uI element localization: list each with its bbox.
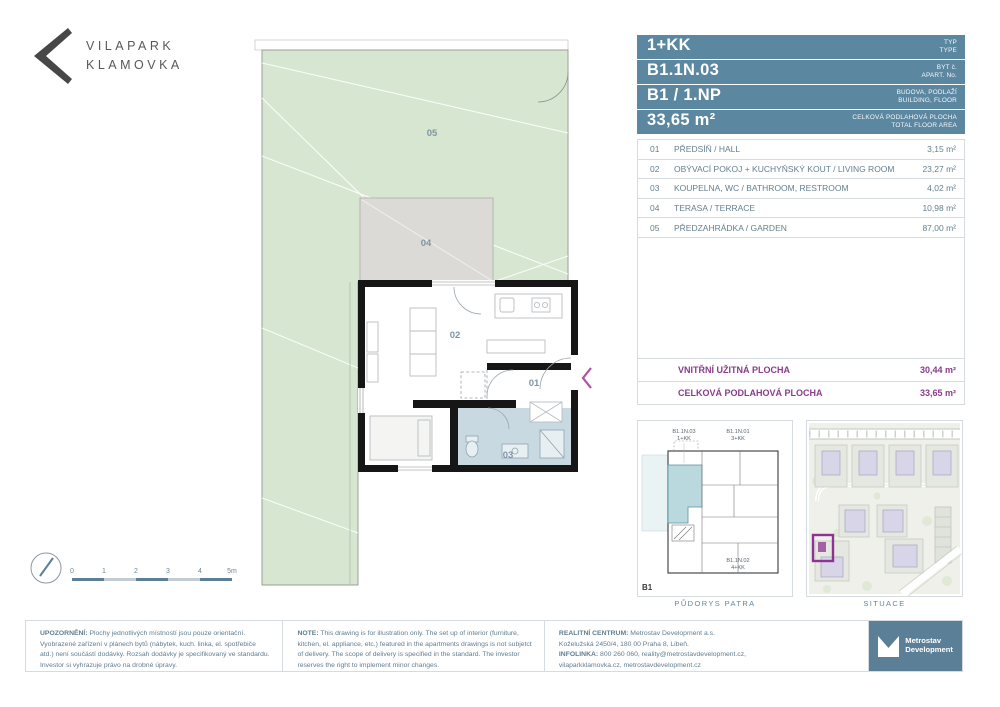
total-area-label-cz: CELKOVÁ PODLAHOVÁ PLOCHA xyxy=(852,114,957,121)
mini-unit1-type: 3+KK xyxy=(731,436,745,442)
header-row-building-floor: B1 / 1.NP BUDOVA, PODLAŽÍ BUILDING, FLOO… xyxy=(637,85,965,109)
site-boundary xyxy=(255,40,568,50)
scale-tick-3: 3 xyxy=(166,568,170,575)
mini-terrace-dashed xyxy=(674,441,698,451)
garden-number-label: 05 xyxy=(427,128,438,139)
metrostav-logo-text: Metrostav Development xyxy=(905,637,953,654)
terrace-number-label: 04 xyxy=(421,238,432,249)
room-name: OBÝVACÍ POKOJ + KUCHYŇSKÝ KOUT / LIVING … xyxy=(674,164,922,174)
total-floor-area: 33,65 m² xyxy=(647,111,715,130)
scale-tick-5: 5m xyxy=(227,568,237,575)
living-number-label: 02 xyxy=(450,330,461,341)
railway-band xyxy=(809,429,960,439)
floor-overview-box: B1.1N.03 1+KK B1.1N.01 3+KK B1.1N.02 4+K… xyxy=(637,420,793,597)
room-number: 02 xyxy=(638,164,674,174)
room-name: KOUPELNA, WC / BATHROOM, RESTROOM xyxy=(674,183,927,193)
room-number: 03 xyxy=(638,183,674,193)
metrostav-m-icon xyxy=(878,636,899,657)
disclaimer-en-label: NOTE: xyxy=(297,630,318,637)
room-area: 4,02 m² xyxy=(927,183,964,193)
room-area: 3,15 m² xyxy=(927,144,964,154)
header-row-apart-no: B1.1N.03 BYT č. APART. No. xyxy=(637,60,965,84)
infoline-label: INFOLINKA: xyxy=(559,651,598,658)
brand-line2: KLAMOVKA xyxy=(86,56,183,75)
total-area-label-en: TOTAL FLOOR AREA xyxy=(891,122,957,129)
room-number: 01 xyxy=(638,144,674,154)
table-row: 03 KOUPELNA, WC / BATHROOM, RESTROOM 4,0… xyxy=(638,179,964,199)
apartment-type: 1+KK xyxy=(647,36,691,55)
brand-logo: VILAPARK KLAMOVKA xyxy=(30,28,183,84)
garden-area xyxy=(262,50,568,585)
entrance-marker-icon xyxy=(583,368,591,388)
table-row: 05 PŘEDZAHRÁDKA / GARDEN 87,00 m² xyxy=(638,218,964,238)
room-area: 10,98 m² xyxy=(922,203,964,213)
scale-tick-labels: 0 1 2 3 4 5m xyxy=(70,568,237,575)
site-map-caption: SITUACE xyxy=(806,599,963,608)
room-name: TERASA / TERRACE xyxy=(674,203,922,213)
summary-label: VNITŘNÍ UŽITNÁ PLOCHA xyxy=(638,365,920,375)
footer-disclaimer-en: NOTE: This drawing is for illustration o… xyxy=(283,621,544,671)
room-table: 01 PŘEDSÍŇ / HALL 3,15 m² 02 OBÝVACÍ POK… xyxy=(637,139,965,238)
dashed-boundaries xyxy=(461,370,487,400)
scale-bar: 0 1 2 3 4 5m xyxy=(28,548,243,593)
summary-value: 30,44 m² xyxy=(920,365,964,375)
infoline-text: 800 260 060, reality@metrostavdevelopmen… xyxy=(598,651,746,658)
building-floor: B1 / 1.NP xyxy=(647,86,721,105)
bathroom-number-label: 03 xyxy=(503,450,514,461)
room-name: PŘEDZAHRÁDKA / GARDEN xyxy=(674,223,922,233)
room-number: 04 xyxy=(638,203,674,213)
brand-line1: VILAPARK xyxy=(86,37,183,56)
scale-tick-2: 2 xyxy=(134,568,138,575)
summary-value: 33,65 m² xyxy=(920,388,964,398)
contact-company: Metrostav Development a.s. xyxy=(628,630,715,637)
disclaimer-en-text: This drawing is for illustration only. T… xyxy=(297,630,531,669)
mini-unit1-id: B1.1N.01 xyxy=(726,429,749,435)
contact-address: Koželužská 2450/4, 180 00 Praha 8, Libeň… xyxy=(559,641,689,648)
building-floor-label-cz: BUDOVA, PODLAŽÍ xyxy=(897,89,957,96)
summary-row-total-area: CELKOVÁ PODLAHOVÁ PLOCHA 33,65 m² xyxy=(638,382,964,405)
site-map-box xyxy=(806,420,963,597)
floor-plan-drawing: 05 04 02 01 03 xyxy=(250,28,622,600)
room-area: 23,27 m² xyxy=(922,164,964,174)
total-area-label: CELKOVÁ PODLAHOVÁ PLOCHA TOTAL FLOOR ARE… xyxy=(852,114,957,131)
mini-unit2-id: B1.1N.02 xyxy=(726,558,749,564)
floor-overview-plan: B1.1N.03 1+KK B1.1N.01 3+KK B1.1N.02 4+K… xyxy=(638,421,792,596)
metrostav-line2: Development xyxy=(905,646,953,655)
type-label-cz: TYP xyxy=(944,39,957,46)
type-label-en: TYPE xyxy=(940,47,958,54)
brand-name: VILAPARK KLAMOVKA xyxy=(86,37,183,76)
mini-unit2-type: 4+KK xyxy=(731,565,745,571)
panel-spacer xyxy=(637,237,965,358)
contact-label: REALITNÍ CENTRUM: xyxy=(559,630,628,637)
contact-websites: vilaparkklamovka.cz, metrostavdevelopmen… xyxy=(559,662,701,669)
disclaimer-cz-label: UPOZORNĚNÍ: xyxy=(40,630,88,637)
building-id-label: B1 xyxy=(642,583,652,592)
room-number: 05 xyxy=(638,223,674,233)
header-row-type: 1+KK TYP TYPE xyxy=(637,35,965,59)
scale-segments xyxy=(72,578,232,581)
apart-no-label-cz: BYT č. xyxy=(937,64,957,71)
floor-overview-caption: PŮDORYS PATRA xyxy=(637,599,793,608)
site-map xyxy=(807,421,962,596)
header-row-total-area: 33,65 m² CELKOVÁ PODLAHOVÁ PLOCHA TOTAL … xyxy=(637,110,965,134)
hall-number-label: 01 xyxy=(529,378,540,389)
table-row: 02 OBÝVACÍ POKOJ + KUCHYŇSKÝ KOUT / LIVI… xyxy=(638,160,964,180)
mini-unit-self-type: 1+KK xyxy=(677,436,691,442)
floor-plan-sheet: VILAPARK KLAMOVKA xyxy=(0,0,1000,707)
apart-no-label: BYT č. APART. No. xyxy=(921,64,957,81)
footer: UPOZORNĚNÍ: Plochy jednotlivých místnost… xyxy=(25,620,963,672)
area-summary: VNITŘNÍ UŽITNÁ PLOCHA 30,44 m² CELKOVÁ P… xyxy=(637,358,965,405)
mini-garden xyxy=(642,455,670,531)
mini-unit-self-id: B1.1N.03 xyxy=(672,429,695,435)
type-label: TYP TYPE xyxy=(940,39,958,56)
metrostav-logo: Metrostav Development xyxy=(869,621,962,671)
site-highlight-unit xyxy=(818,542,826,552)
scale-tick-0: 0 xyxy=(70,568,74,575)
summary-row-usable-area: VNITŘNÍ UŽITNÁ PLOCHA 30,44 m² xyxy=(638,359,964,382)
apartment-number: B1.1N.03 xyxy=(647,61,719,80)
footer-disclaimer-cz: UPOZORNĚNÍ: Plochy jednotlivých místnost… xyxy=(26,621,283,671)
building-floor-label: BUDOVA, PODLAŽÍ BUILDING, FLOOR xyxy=(897,89,957,106)
scale-tick-1: 1 xyxy=(102,568,106,575)
building-floor-label-en: BUILDING, FLOOR xyxy=(898,97,957,104)
room-area: 87,00 m² xyxy=(922,223,964,233)
table-row: 04 TERASA / TERRACE 10,98 m² xyxy=(638,199,964,219)
footer-contact: REALITNÍ CENTRUM: Metrostav Development … xyxy=(545,621,869,671)
room-name: PŘEDSÍŇ / HALL xyxy=(674,144,927,154)
brand-chevron-icon xyxy=(30,28,72,84)
apart-no-label-en: APART. No. xyxy=(921,72,957,79)
summary-label: CELKOVÁ PODLAHOVÁ PLOCHA xyxy=(638,388,920,398)
scale-tick-4: 4 xyxy=(198,568,202,575)
table-row: 01 PŘEDSÍŇ / HALL 3,15 m² xyxy=(638,140,964,160)
